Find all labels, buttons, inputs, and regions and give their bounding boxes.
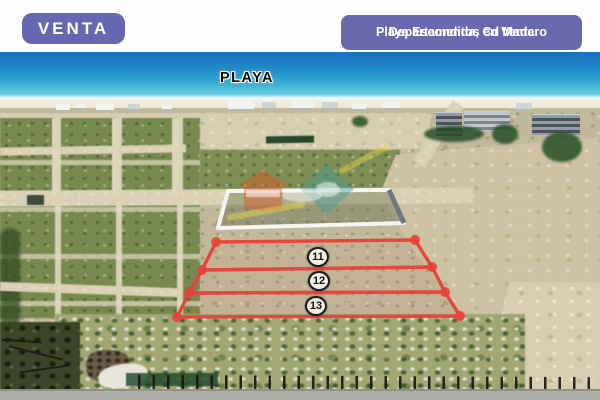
corner-dot bbox=[440, 287, 450, 297]
corner-dot bbox=[455, 311, 465, 321]
corner-dot bbox=[184, 288, 194, 298]
plot-number: 12 bbox=[313, 275, 325, 287]
plot-marker-11: 11 bbox=[307, 247, 329, 267]
plot-number: 11 bbox=[312, 251, 324, 263]
corner-dot bbox=[427, 262, 437, 272]
listing-title-badge: Departamentos en Venta Playa Escondida, … bbox=[341, 15, 582, 50]
corner-dot bbox=[410, 235, 420, 245]
venta-badge: VENTA bbox=[22, 13, 125, 44]
corner-dot bbox=[211, 237, 221, 247]
playa-label: PLAYA bbox=[220, 70, 274, 86]
corner-dot bbox=[197, 265, 207, 275]
listing-title-line2: Playa Escondida, Cd Madero bbox=[376, 24, 547, 40]
plot-number: 13 bbox=[310, 300, 322, 312]
plot-marker-13: 13 bbox=[305, 296, 327, 316]
aerial-photo: 11 12 13 PLAYA VENTA Departamentos en Ve… bbox=[0, 0, 600, 400]
concrete-strip bbox=[0, 389, 600, 400]
corner-dot bbox=[172, 312, 182, 322]
venta-badge-label: VENTA bbox=[38, 19, 109, 39]
red-plots-overlay bbox=[0, 0, 600, 400]
plot-marker-12: 12 bbox=[308, 271, 330, 291]
